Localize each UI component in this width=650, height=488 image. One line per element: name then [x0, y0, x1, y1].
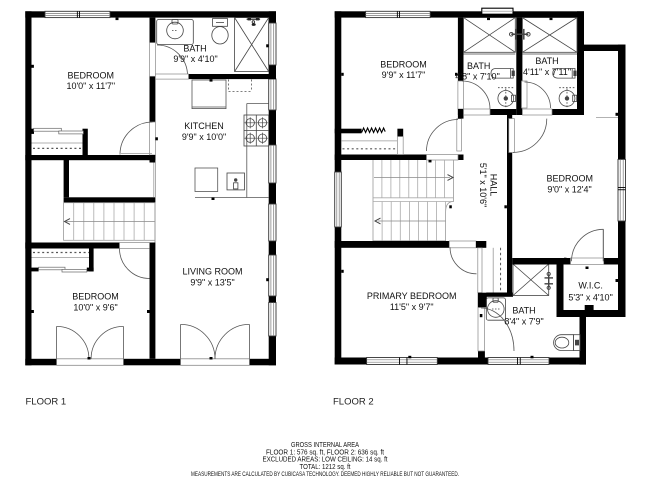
svg-text:8'4" x 7'9": 8'4" x 7'9" [504, 317, 543, 327]
svg-text:BATH: BATH [467, 61, 490, 71]
svg-text:BEDROOM: BEDROOM [72, 292, 119, 302]
svg-text:FLOOR 1: FLOOR 1 [26, 397, 67, 408]
svg-text:LIVING ROOM: LIVING ROOM [182, 267, 242, 277]
svg-text:9'9" x 10'0": 9'9" x 10'0" [182, 132, 226, 142]
svg-text:BEDROOM: BEDROOM [68, 70, 115, 80]
svg-text:10'0" x 9'6": 10'0" x 9'6" [73, 303, 117, 313]
svg-text:5'3" x 4'10": 5'3" x 4'10" [568, 292, 612, 302]
svg-text:9'9" x 4'10": 9'9" x 4'10" [173, 54, 217, 64]
svg-text:TOTAL: 1212 sq. ft: TOTAL: 1212 sq. ft [300, 462, 351, 471]
svg-text:HALL: HALL [489, 174, 499, 197]
svg-text:BATH: BATH [535, 56, 558, 66]
svg-text:11'5" x 9'7": 11'5" x 9'7" [390, 302, 434, 312]
svg-text:4'8" x 7'10": 4'8" x 7'10" [455, 71, 499, 81]
svg-text:9'9" x 13'5": 9'9" x 13'5" [190, 278, 234, 288]
svg-text:10'0" x 11'7": 10'0" x 11'7" [66, 81, 115, 91]
svg-text:9'9" x 11'7": 9'9" x 11'7" [382, 70, 426, 80]
svg-text:5'1" x 10'6": 5'1" x 10'6" [478, 163, 488, 207]
svg-text:PRIMARY BEDROOM: PRIMARY BEDROOM [367, 291, 457, 301]
svg-text:MEASUREMENTS ARE CALCULATED BY: MEASUREMENTS ARE CALCULATED BY CUBICASA … [191, 472, 459, 478]
svg-text:BEDROOM: BEDROOM [546, 174, 593, 184]
svg-text:BATH: BATH [512, 306, 535, 316]
svg-text:9'0" x 12'4": 9'0" x 12'4" [547, 185, 591, 195]
svg-text:KITCHEN: KITCHEN [184, 121, 224, 131]
svg-text:FLOOR 2: FLOOR 2 [333, 397, 374, 408]
svg-text:4'11" x 7'11": 4'11" x 7'11" [523, 67, 571, 77]
svg-text:BATH: BATH [183, 43, 206, 53]
svg-text:W.I.C.: W.I.C. [578, 280, 603, 290]
svg-text:BEDROOM: BEDROOM [380, 60, 427, 70]
